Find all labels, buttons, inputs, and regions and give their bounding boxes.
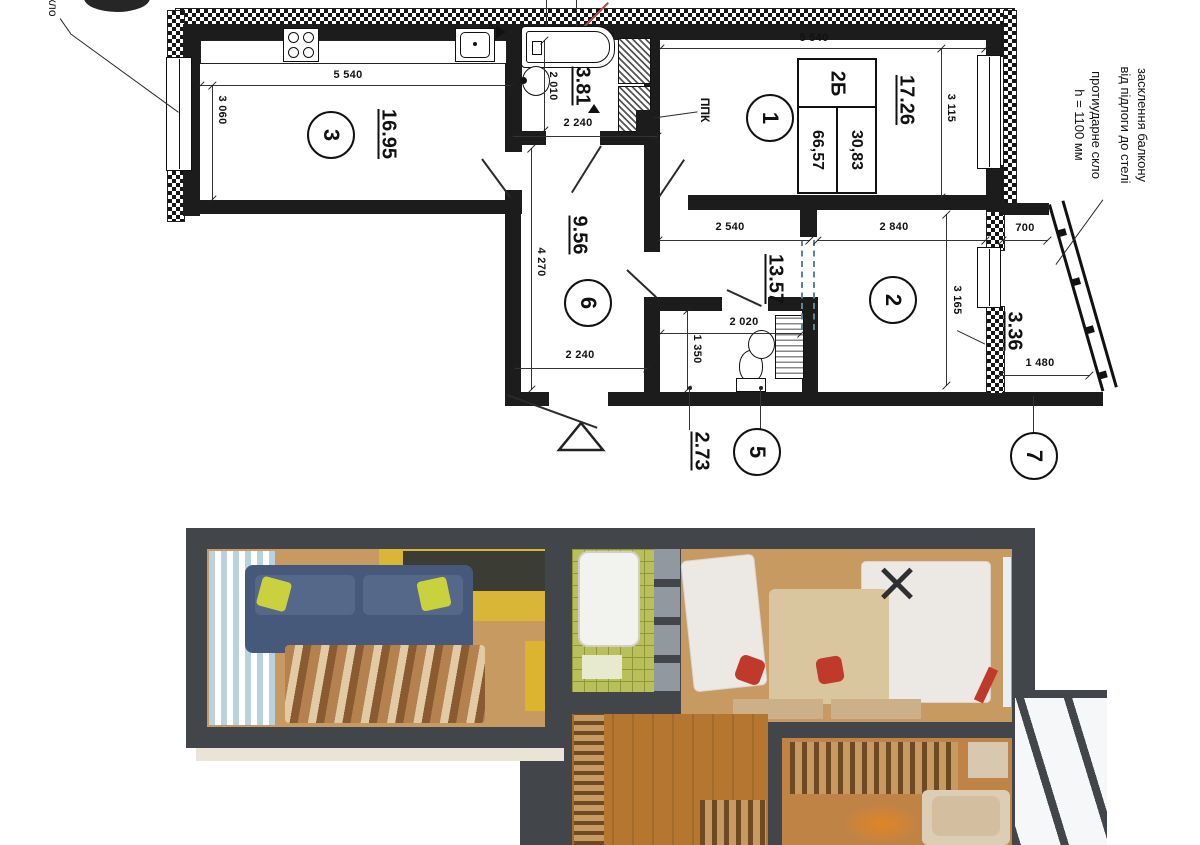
- render-kitchen-island: [525, 641, 545, 711]
- entrance-arrow: [556, 420, 606, 454]
- render-shelf-column: [654, 549, 680, 694]
- dim-hall-depth: 4 270: [535, 247, 547, 276]
- wall-wc-top-a: [660, 297, 722, 311]
- render-bedroom: [681, 549, 1012, 722]
- dim3165-leader: [957, 330, 985, 345]
- corner-glass-label: скло: [44, 0, 60, 17]
- corner-leader-a: [59, 18, 70, 33]
- wall-balcony-bottom: [1002, 392, 1103, 406]
- linen-closet-upper: [618, 38, 651, 84]
- dim-bath-depth: 2 010: [547, 71, 559, 100]
- wardrobe-dashed-a: [801, 240, 803, 330]
- dim-kitchen-width-line: [200, 85, 512, 86]
- dim-room1-width: 5 540: [799, 32, 828, 44]
- dim-bath-width: 2 240: [563, 117, 592, 129]
- render-desk-b: [831, 699, 921, 719]
- wc-area-leader: [689, 390, 690, 430]
- callout-balloon-partial: [84, 0, 150, 12]
- render-shelf-bottom: [700, 800, 766, 845]
- wall-kitchen-bottom: [183, 200, 522, 214]
- render-living-room: [207, 549, 545, 727]
- stamp-total-area: 66,57: [809, 130, 827, 170]
- stamp-living-cell: 30,83: [836, 108, 875, 192]
- render-shadow: [196, 748, 564, 761]
- room-circle-6: 6: [564, 279, 612, 327]
- render-window-strip: [1003, 557, 1011, 707]
- dim-bedroom-width: 2 840: [879, 221, 908, 233]
- area-bedroom: 13.57: [764, 254, 787, 304]
- area-bathroom-marker: [588, 104, 600, 113]
- washer-icon: [775, 315, 804, 379]
- render-wardrobe-left: [574, 714, 604, 845]
- dim-balcony-top: 700: [1015, 222, 1034, 234]
- door-wc-swing: [727, 289, 762, 307]
- stamp-type-cell: 2Б: [799, 60, 875, 108]
- wall-mid-upper: [644, 145, 660, 252]
- render-lower-room: [782, 738, 1012, 845]
- glazing-mullion: [1056, 228, 1067, 237]
- room-circle-1: 1: [746, 94, 794, 142]
- dim-kitchen-width: 5 540: [333, 69, 362, 81]
- render-lamp-glow: [842, 804, 922, 844]
- floorplan-screenshot: скло 5 540 3 060 5 540 3 115 2 01: [0, 0, 1200, 845]
- dim-bath-width-line: [512, 136, 658, 137]
- room-circle-3: 3: [307, 111, 355, 159]
- dim-wc-width-line: [660, 333, 802, 334]
- room-circle-7: 7: [1010, 432, 1058, 480]
- area-hallway: 9.56: [568, 216, 591, 255]
- window-room1: [977, 55, 1001, 169]
- render-balcony-glazing: [1015, 690, 1107, 845]
- wc-area-dot: [688, 386, 692, 390]
- dim-balcony-bottom-line: [1000, 375, 1090, 376]
- wall-balcony-top: [1002, 203, 1049, 215]
- area-bathroom: 3.81: [571, 67, 594, 106]
- ppk-label: ППК: [696, 98, 712, 123]
- area-wc: 2.73: [690, 432, 713, 471]
- balcony-glazing: [1048, 200, 1118, 391]
- vent-triangle-icon: [496, 26, 506, 38]
- dim-kitchen-depth-line: [212, 85, 213, 200]
- dim-hall-width: 2 240: [565, 349, 594, 361]
- door-kitchen-swing: [481, 158, 511, 197]
- dim-room1-depth: 3 115: [945, 94, 957, 122]
- dim-bedroom-depth: 3 165: [951, 285, 963, 314]
- render-knit-pillow: [932, 796, 1000, 836]
- dim-wc-width: 2 020: [729, 316, 758, 328]
- render-wardrobe-band: [790, 742, 958, 794]
- render-chair-b: [815, 655, 845, 685]
- corner-leader-b: [70, 33, 179, 113]
- dim-hall-depth-line: [531, 148, 532, 390]
- apartment-stamp: 2Б 30,83 66,57: [797, 58, 877, 194]
- dim-zone-width-line: [658, 240, 810, 241]
- dim-wc-depth: 1 350: [691, 334, 703, 363]
- stamp-living-area: 30,83: [848, 130, 866, 170]
- wall-right-room1-a: [986, 24, 1003, 57]
- balcony-glazing-note: засклення балкону від підлоги до стелі: [1116, 66, 1150, 183]
- kitchen-sink-icon: [455, 28, 495, 62]
- wall-wc-right: [802, 297, 818, 406]
- bath-sink-icon: [522, 66, 550, 96]
- stamp-total-cell: 66,57: [799, 108, 836, 192]
- wall-room1-bottom-b: [817, 195, 986, 210]
- wall-pier-upper: [986, 211, 1005, 251]
- glazing-mullion: [1097, 370, 1108, 379]
- window-room2: [977, 247, 1001, 308]
- glazing-mullion: [1084, 325, 1095, 334]
- room-circle-2: 2: [869, 276, 917, 324]
- dim-room1-width-line: [660, 48, 986, 49]
- door-bathroom-swing: [571, 145, 602, 193]
- door-bedroomzone-swing: [626, 269, 657, 298]
- stove-icon: [283, 28, 319, 62]
- bathtub-icon: [521, 26, 615, 68]
- circle5-leader: [760, 390, 761, 430]
- wall-mid-lower: [644, 297, 660, 406]
- wardrobe-dashed-b: [813, 240, 815, 330]
- dim-room1-depth-line: [941, 48, 942, 198]
- wall-room1-bottom-a: [688, 195, 800, 210]
- dim-hall-width-line: [514, 368, 648, 369]
- dim-bedroom-depth-line: [946, 214, 947, 386]
- render-bathtub: [578, 551, 640, 647]
- glazing-mullion: [1070, 277, 1081, 286]
- dim-bath-depth-line: [544, 40, 545, 131]
- area-room1: 17.26: [895, 75, 918, 125]
- window-kitchen: [166, 57, 192, 171]
- dim-kitchen-depth: 3 060: [216, 95, 228, 124]
- wall-pier-room2: [800, 195, 817, 237]
- stamp-type: 2Б: [826, 70, 849, 96]
- circle7-leader: [1033, 396, 1034, 432]
- area-kitchen: 16.95: [377, 109, 400, 159]
- ppk-box: [636, 110, 654, 132]
- render-corridor: [572, 714, 768, 845]
- dim-zone-width: 2 540: [715, 221, 744, 233]
- render-bathroom: [572, 549, 654, 692]
- wall-right-room1-b: [986, 165, 1003, 211]
- render-cabinet: [968, 742, 1008, 778]
- impact-glass-note: протиударне скло h = 1100 мм: [1070, 71, 1104, 179]
- area-balcony: 3.36: [1003, 312, 1026, 351]
- dim-balcony-bottom: 1 480: [1025, 357, 1054, 369]
- insulation-right: [1003, 10, 1017, 212]
- render-tan-rug: [769, 589, 889, 704]
- circle5-dot: [759, 386, 763, 390]
- dim-wc-depth-line: [687, 310, 688, 390]
- render-bath-mat: [582, 655, 622, 679]
- dim-balcony-top-line: [1002, 240, 1048, 241]
- render-pillow-b: [416, 576, 452, 612]
- door-room1-swing: [658, 159, 685, 197]
- room-circle-5: 5: [733, 428, 781, 476]
- wall-bottom-a: [505, 392, 549, 406]
- render-ceiling-fan: [877, 563, 917, 603]
- render-bed-lower: [922, 790, 1010, 845]
- wall-bath-bottom-b: [600, 131, 660, 145]
- dim-bedroom-width-line: [817, 240, 986, 241]
- render-striped-rug: [285, 645, 485, 723]
